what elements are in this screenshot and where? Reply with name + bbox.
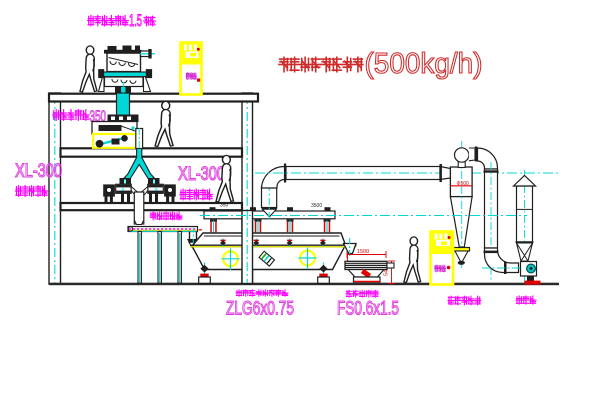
svg-text:1500: 1500 — [357, 249, 369, 255]
svg-text:Φ500: Φ500 — [457, 181, 470, 187]
svg-text:1.5: 1.5 — [129, 11, 142, 30]
svg-text:FS0.6x1.5: FS0.6x1.5 — [337, 299, 399, 320]
svg-text:(500kg/h): (500kg/h) — [365, 48, 483, 80]
svg-text:XL-300: XL-300 — [15, 161, 62, 182]
svg-text:XL-300: XL-300 — [178, 164, 225, 185]
svg-text:3500: 3500 — [311, 203, 322, 209]
svg-text:350: 350 — [220, 203, 229, 209]
svg-text:ZLG6x0.75: ZLG6x0.75 — [226, 299, 294, 320]
